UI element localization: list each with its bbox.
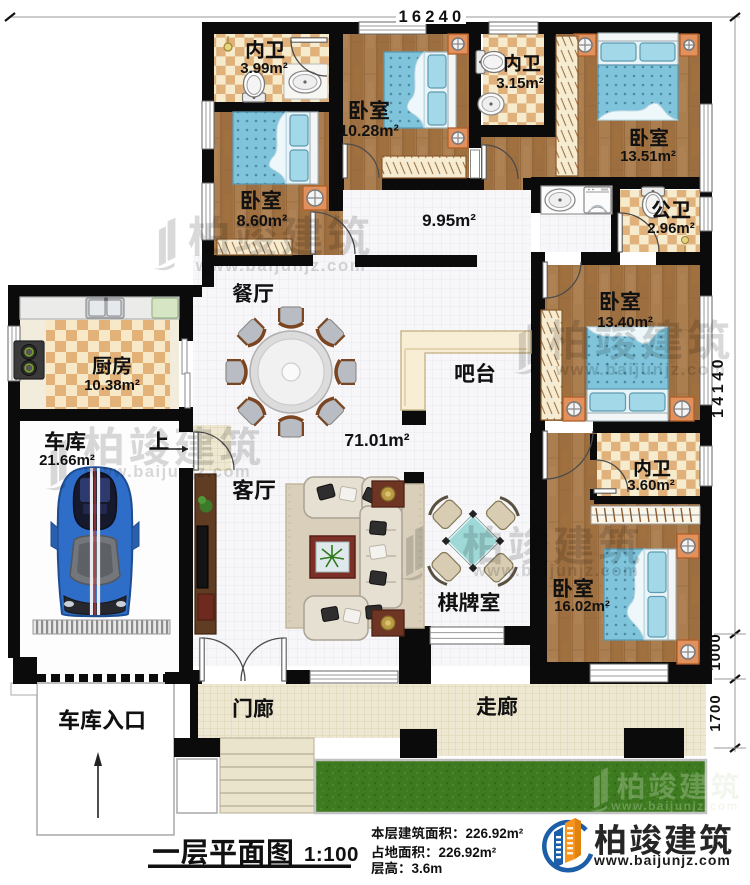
svg-text:10.38m²: 10.38m²	[84, 377, 140, 394]
svg-text:3.60m²: 3.60m²	[627, 477, 675, 494]
svg-text:226.92m²: 226.92m²	[439, 845, 497, 860]
svg-text:9.95m²: 9.95m²	[422, 211, 476, 230]
svg-text:71.01m²: 71.01m²	[344, 430, 409, 450]
svg-text:3.15m²: 3.15m²	[496, 75, 544, 92]
svg-text:226.92m²: 226.92m²	[466, 826, 524, 841]
svg-text:3.99m²: 3.99m²	[240, 60, 288, 77]
svg-text:www.baijunjz.com: www.baijunjz.com	[195, 256, 367, 275]
svg-text:www.baijunjz.com: www.baijunjz.com	[555, 360, 727, 379]
svg-text:13.51m²: 13.51m²	[620, 148, 676, 165]
svg-text:16240: 16240	[399, 8, 466, 26]
svg-text:1700: 1700	[707, 694, 724, 731]
svg-text:www.baijunjz.com: www.baijunjz.com	[610, 799, 739, 813]
svg-text:1:100: 1:100	[304, 843, 359, 866]
svg-text:3.6m: 3.6m	[412, 861, 443, 876]
svg-text:10.28m²: 10.28m²	[339, 123, 399, 140]
svg-text:1000: 1000	[707, 633, 724, 670]
svg-text:www.baijunjz.com: www.baijunjz.com	[84, 463, 251, 481]
svg-text:16.02m²: 16.02m²	[554, 598, 610, 615]
svg-text:www.baijunjz.com: www.baijunjz.com	[593, 852, 731, 868]
svg-text:2.96m²: 2.96m²	[647, 220, 695, 237]
svg-text:www.baijunjz.com: www.baijunjz.com	[472, 562, 639, 580]
